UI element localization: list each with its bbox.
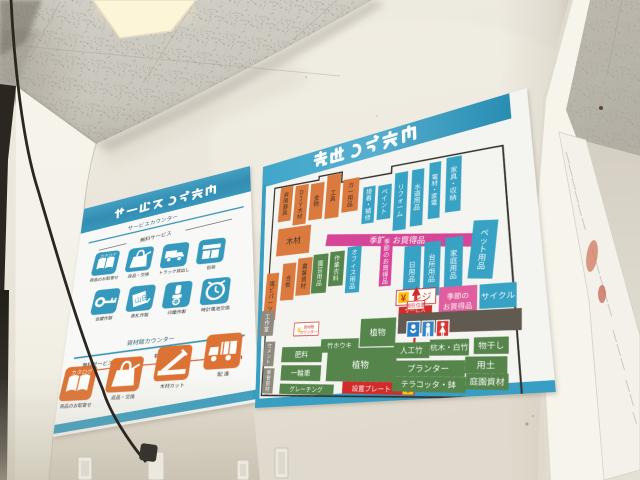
svg-text:配 達: 配 達 [217,369,230,377]
svg-text:カウンター: カウンター [300,329,318,335]
svg-text:家庭用品: 家庭用品 [449,248,458,282]
